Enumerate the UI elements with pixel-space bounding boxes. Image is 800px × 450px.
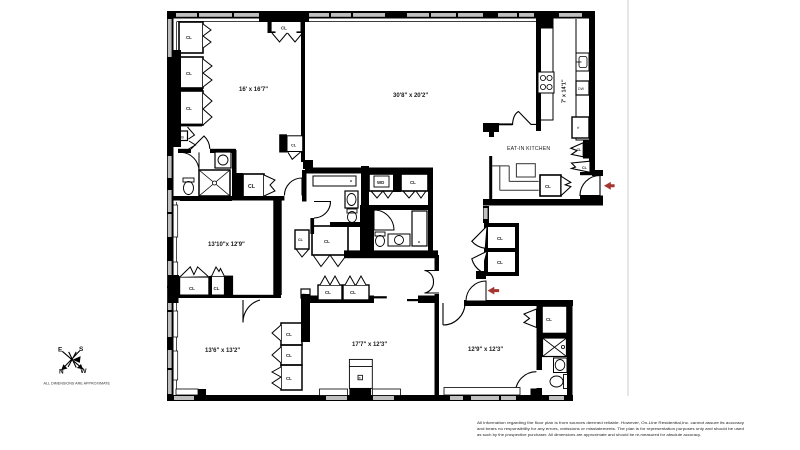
svg-text:CL: CL bbox=[582, 166, 588, 170]
svg-text:CL: CL bbox=[545, 184, 551, 189]
svg-text:N: N bbox=[59, 368, 64, 375]
svg-text:CL: CL bbox=[298, 238, 304, 242]
svg-text:as such by the prospective pur: as such by the prospective purchaser. Al… bbox=[477, 432, 701, 437]
svg-text:DW: DW bbox=[578, 87, 585, 91]
svg-text:CL: CL bbox=[546, 317, 552, 322]
svg-text:EAT-IN KITCHEN: EAT-IN KITCHEN bbox=[507, 146, 550, 152]
svg-text:CL: CL bbox=[291, 144, 297, 148]
svg-text:CL: CL bbox=[189, 286, 195, 291]
svg-text:13'6" x 13'2": 13'6" x 13'2" bbox=[205, 348, 240, 354]
svg-text:Bl: Bl bbox=[181, 136, 184, 140]
svg-text:CL: CL bbox=[248, 184, 256, 190]
svg-text:E: E bbox=[58, 346, 63, 353]
svg-text:CL: CL bbox=[286, 332, 292, 337]
svg-text:30'8" x 20'2": 30'8" x 20'2" bbox=[393, 93, 428, 99]
svg-text:ALL DIMENSIONS ARE APPROXIMATE: ALL DIMENSIONS ARE APPROXIMATE bbox=[44, 382, 111, 386]
svg-text:CL: CL bbox=[577, 148, 583, 152]
svg-text:17'7" x 12'3": 17'7" x 12'3" bbox=[352, 342, 387, 348]
svg-text:B: B bbox=[359, 376, 361, 380]
svg-text:CL: CL bbox=[286, 353, 292, 358]
svg-text:16' x 16'7": 16' x 16'7" bbox=[239, 87, 268, 93]
svg-text:WD: WD bbox=[377, 180, 384, 185]
svg-text:CL: CL bbox=[281, 26, 287, 31]
svg-text:CL: CL bbox=[350, 290, 356, 295]
svg-text:CL: CL bbox=[186, 106, 192, 111]
svg-text:W: W bbox=[81, 368, 88, 375]
svg-text:CL: CL bbox=[497, 236, 503, 241]
svg-text:7' x 14'1": 7' x 14'1" bbox=[562, 79, 568, 103]
svg-text:CL: CL bbox=[186, 35, 192, 40]
svg-text:CL: CL bbox=[286, 376, 292, 381]
svg-text:rf: rf bbox=[577, 126, 579, 130]
svg-text:CL: CL bbox=[214, 286, 220, 291]
svg-text:and bears no responsibility fo: and bears no responsibility for any erro… bbox=[477, 426, 744, 431]
svg-text:13'10"x 12'9": 13'10"x 12'9" bbox=[208, 242, 245, 248]
svg-text:CL: CL bbox=[497, 260, 503, 265]
svg-text:12'9" x 12'3": 12'9" x 12'3" bbox=[468, 347, 503, 353]
svg-text:CL: CL bbox=[410, 180, 416, 185]
svg-text:CL: CL bbox=[324, 239, 330, 244]
svg-text:All information regarding the: All information regarding the floor plan… bbox=[477, 420, 744, 425]
svg-text:CL: CL bbox=[186, 71, 192, 76]
svg-text:CL: CL bbox=[325, 290, 331, 295]
svg-text:S: S bbox=[79, 346, 84, 353]
